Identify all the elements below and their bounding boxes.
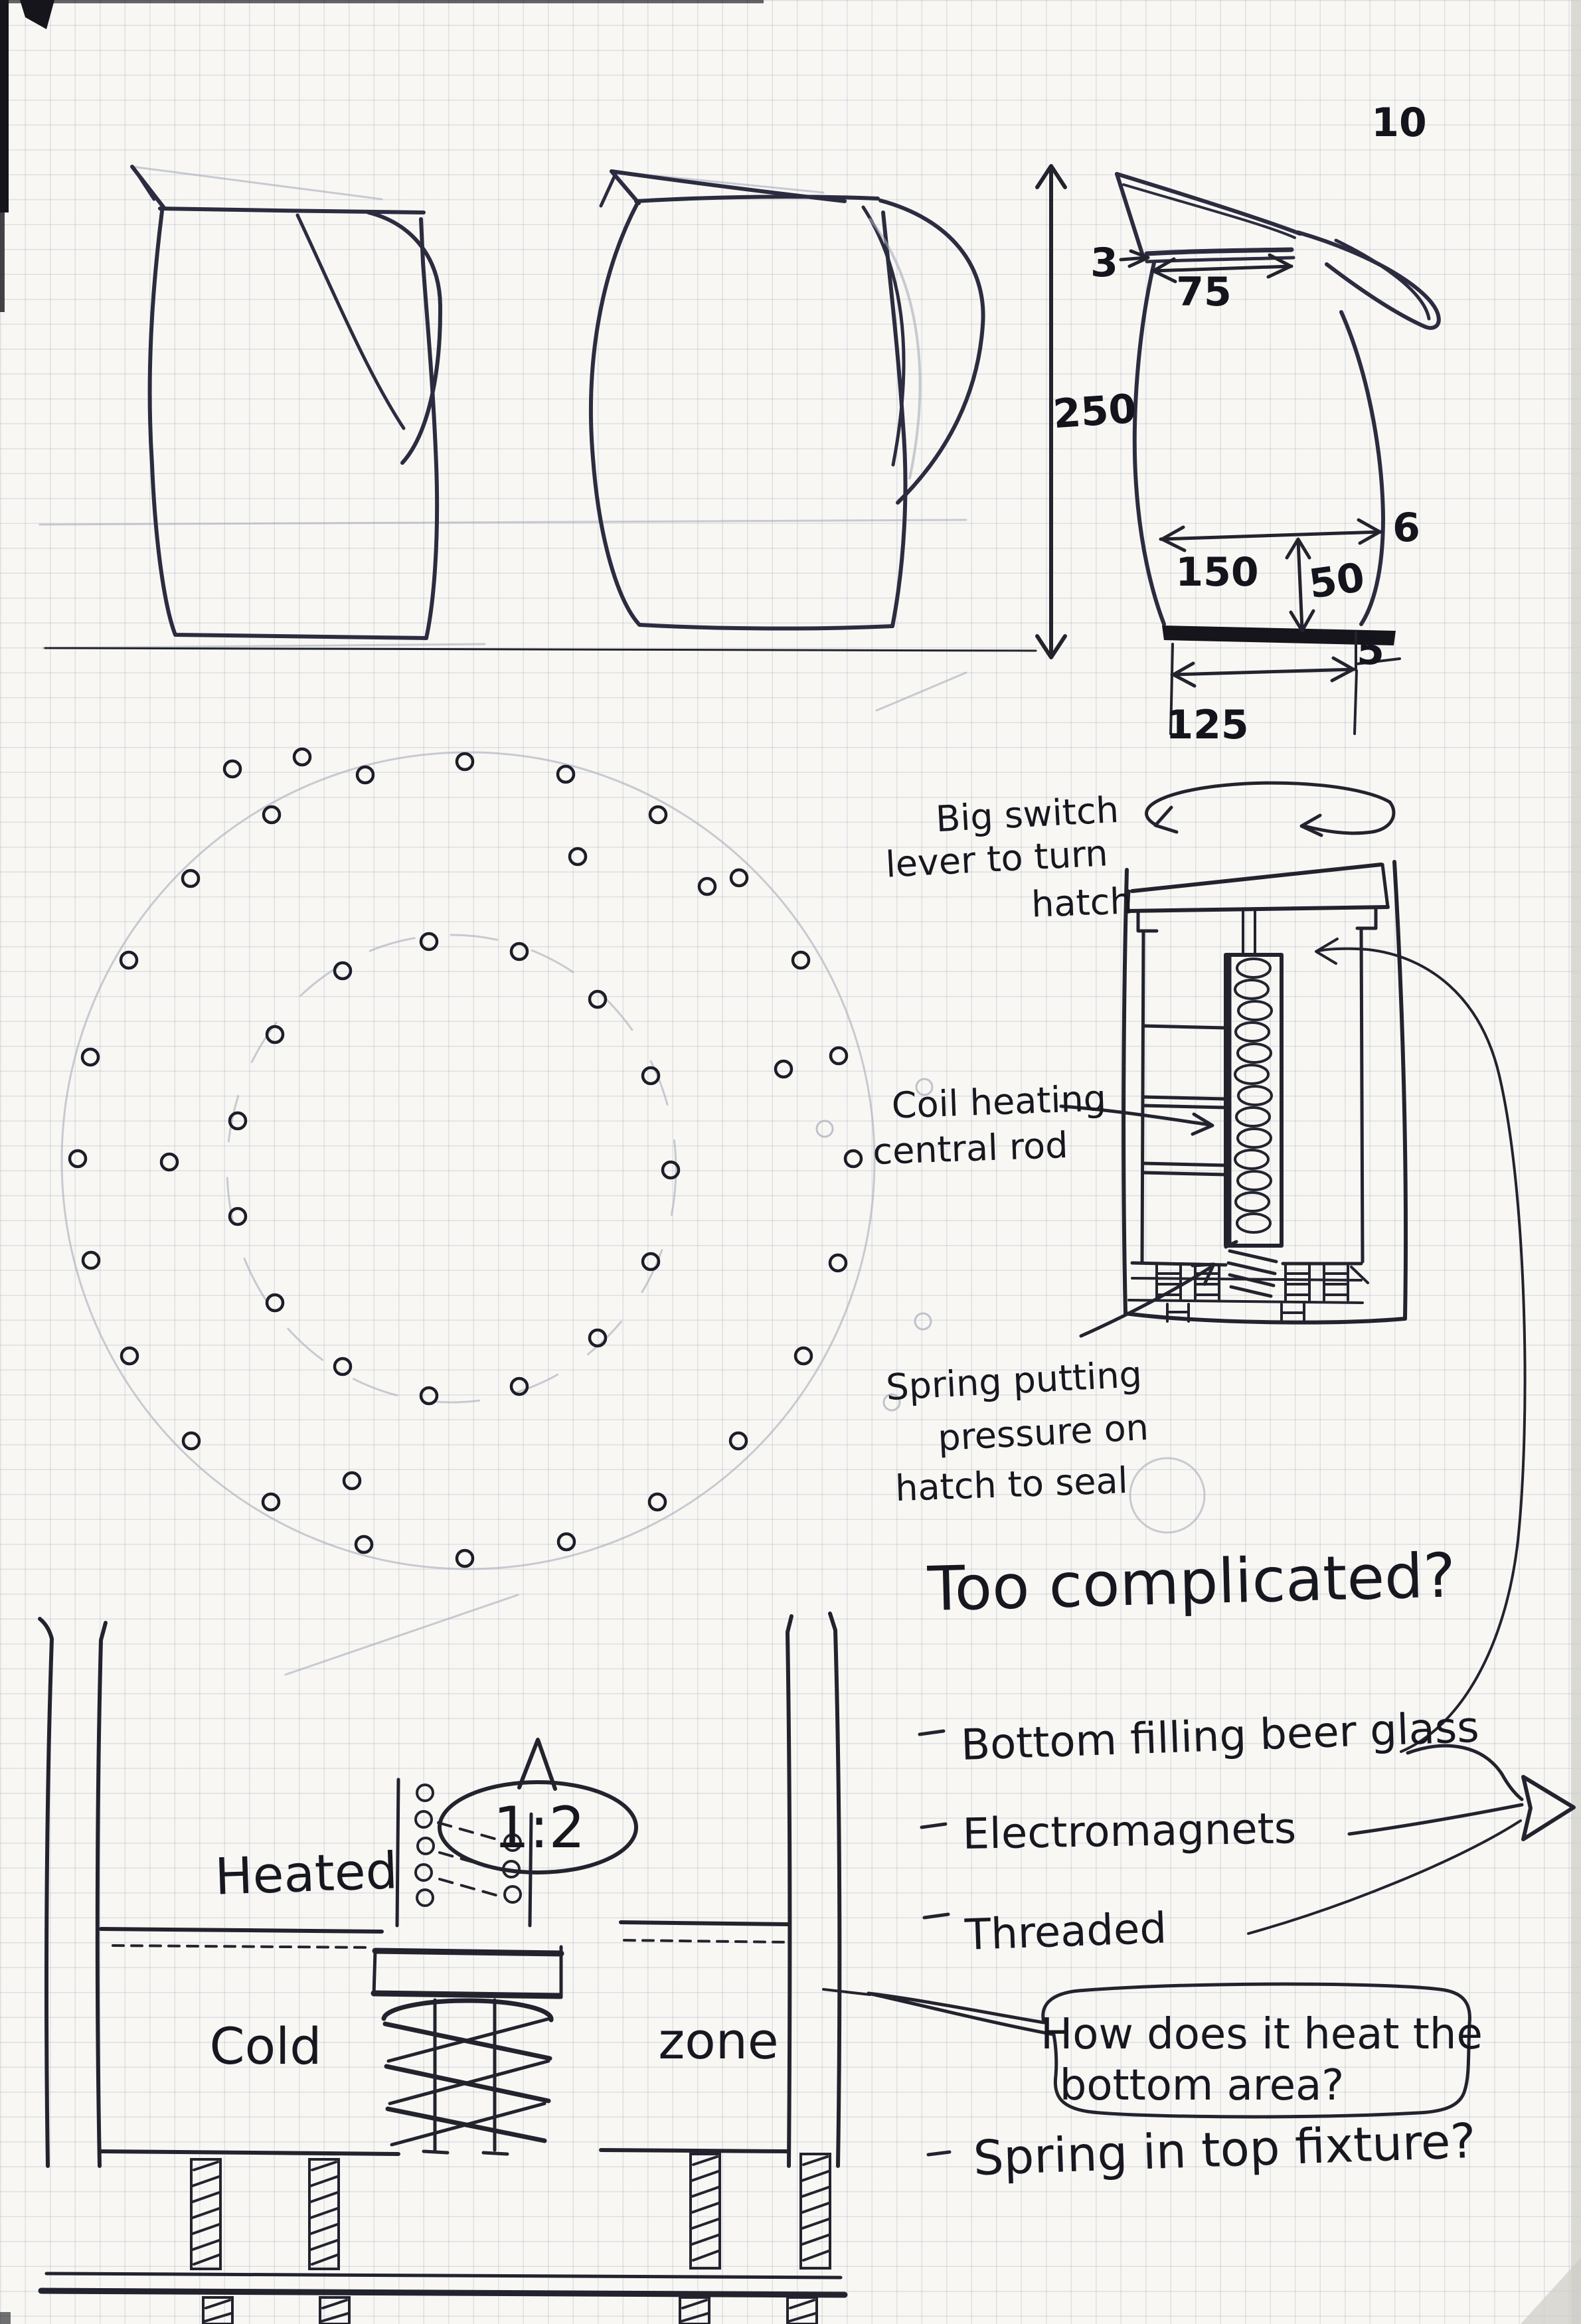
hole-mark [915, 1313, 931, 1329]
note-coil-line2: central rod [872, 1124, 1068, 1173]
dim-label-body-width: 150 [1175, 549, 1258, 596]
hole-mark [558, 766, 574, 782]
hole-mark [830, 1255, 846, 1271]
idea-item-1: Bottom filling beer glass [960, 1703, 1480, 1770]
base-pillar-hatched [191, 2154, 830, 2269]
label-zone: zone [658, 2011, 778, 2070]
hole-mark [558, 1534, 574, 1550]
idea-item-3: Threaded [963, 1904, 1167, 1960]
hole-mark [817, 1121, 833, 1137]
hole-mark [457, 1550, 473, 1566]
hole-mark [730, 1433, 746, 1449]
dim-label-base-width: 125 [1165, 702, 1248, 748]
hole-mark [590, 1330, 606, 1346]
hole-mark [161, 1154, 177, 1170]
dim-label-wall: 6 [1392, 505, 1420, 551]
hole-mark [224, 761, 240, 777]
hole-mark [294, 749, 310, 765]
hole-mark [795, 1348, 811, 1364]
hole-mark [421, 934, 437, 950]
hole-mark [590, 991, 606, 1007]
sketch-canvas: 10 3 75 250 150 50 6 5 125 [0, 0, 1581, 2324]
note-spring-line2: pressure on [937, 1406, 1150, 1459]
review-question: Too complicated? [926, 1540, 1457, 1625]
hole-mark [70, 1151, 86, 1167]
hole-mark [570, 849, 586, 865]
pitcher-sketch-dimensioned [1117, 174, 1439, 645]
hole-mark [356, 1536, 372, 1552]
note-spring-line3: hatch to seal [894, 1459, 1128, 1509]
hole-mark [643, 1254, 659, 1270]
dim-label-base-thickness: 5 [1357, 627, 1384, 674]
dim-label-neck-height: 50 [1306, 554, 1367, 608]
hole-mark [335, 963, 351, 979]
pitcher-sketch-three-quarter [591, 171, 983, 629]
hole-mark [263, 1494, 279, 1510]
note-switch-line2: lever to turn [884, 832, 1109, 885]
label-cold: Cold [210, 2017, 322, 2076]
idea-item-2: Electromagnets [962, 1804, 1297, 1859]
label-scale: 1:2 [493, 1795, 585, 1861]
hole-mark [421, 1388, 437, 1404]
note-coil-line1: Coil heating [891, 1077, 1107, 1126]
hole-mark [267, 1027, 283, 1042]
hole-mark [831, 1048, 847, 1064]
hole-mark [457, 754, 473, 770]
hole-mark [643, 1068, 659, 1084]
hatch-holes-top-view [70, 749, 861, 1566]
base-pillar-hatched-lower [203, 2297, 817, 2324]
hole-mark [650, 807, 666, 823]
pitcher-sketch-front [132, 167, 440, 638]
bubble-question-line2: bottom area? [1060, 2061, 1345, 2110]
bubble-question-line1: How does it heat the [1040, 2010, 1483, 2059]
hole-mark [83, 1252, 99, 1268]
hole-mark [264, 807, 280, 823]
notebook-page: 10 3 75 250 150 50 6 5 125 [0, 0, 1581, 2324]
faint-pencil-holes [817, 1079, 932, 1410]
hole-mark [183, 1433, 199, 1449]
hole-mark [845, 1151, 861, 1167]
hole-mark [649, 1494, 665, 1510]
hole-mark [82, 1049, 98, 1065]
mechanism-cross-section [1123, 783, 1406, 1322]
hole-mark [183, 871, 199, 886]
label-heated: Heated [214, 1841, 398, 1906]
followup-note: Spring in top fixture? [972, 2113, 1476, 2186]
hole-mark [335, 1359, 351, 1374]
hole-mark [511, 944, 527, 959]
dim-label-spout: 10 [1371, 100, 1427, 146]
dim-label-lid-thickness: 3 [1090, 240, 1118, 286]
dim-label-lid-width: 75 [1176, 269, 1232, 315]
hole-mark [793, 952, 809, 968]
glass-base-cross-section [40, 1614, 845, 2324]
note-switch-line3: hatch [1031, 880, 1133, 925]
hole-mark [267, 1295, 283, 1311]
note-spring-line1: Spring putting [885, 1353, 1143, 1408]
hole-mark [699, 878, 715, 894]
hole-mark [776, 1061, 791, 1077]
hole-mark [122, 1348, 137, 1364]
hole-mark [731, 870, 747, 886]
hole-mark [121, 952, 137, 968]
hole-mark [344, 1473, 360, 1489]
dim-label-height: 250 [1052, 386, 1138, 438]
hole-mark [357, 767, 373, 783]
